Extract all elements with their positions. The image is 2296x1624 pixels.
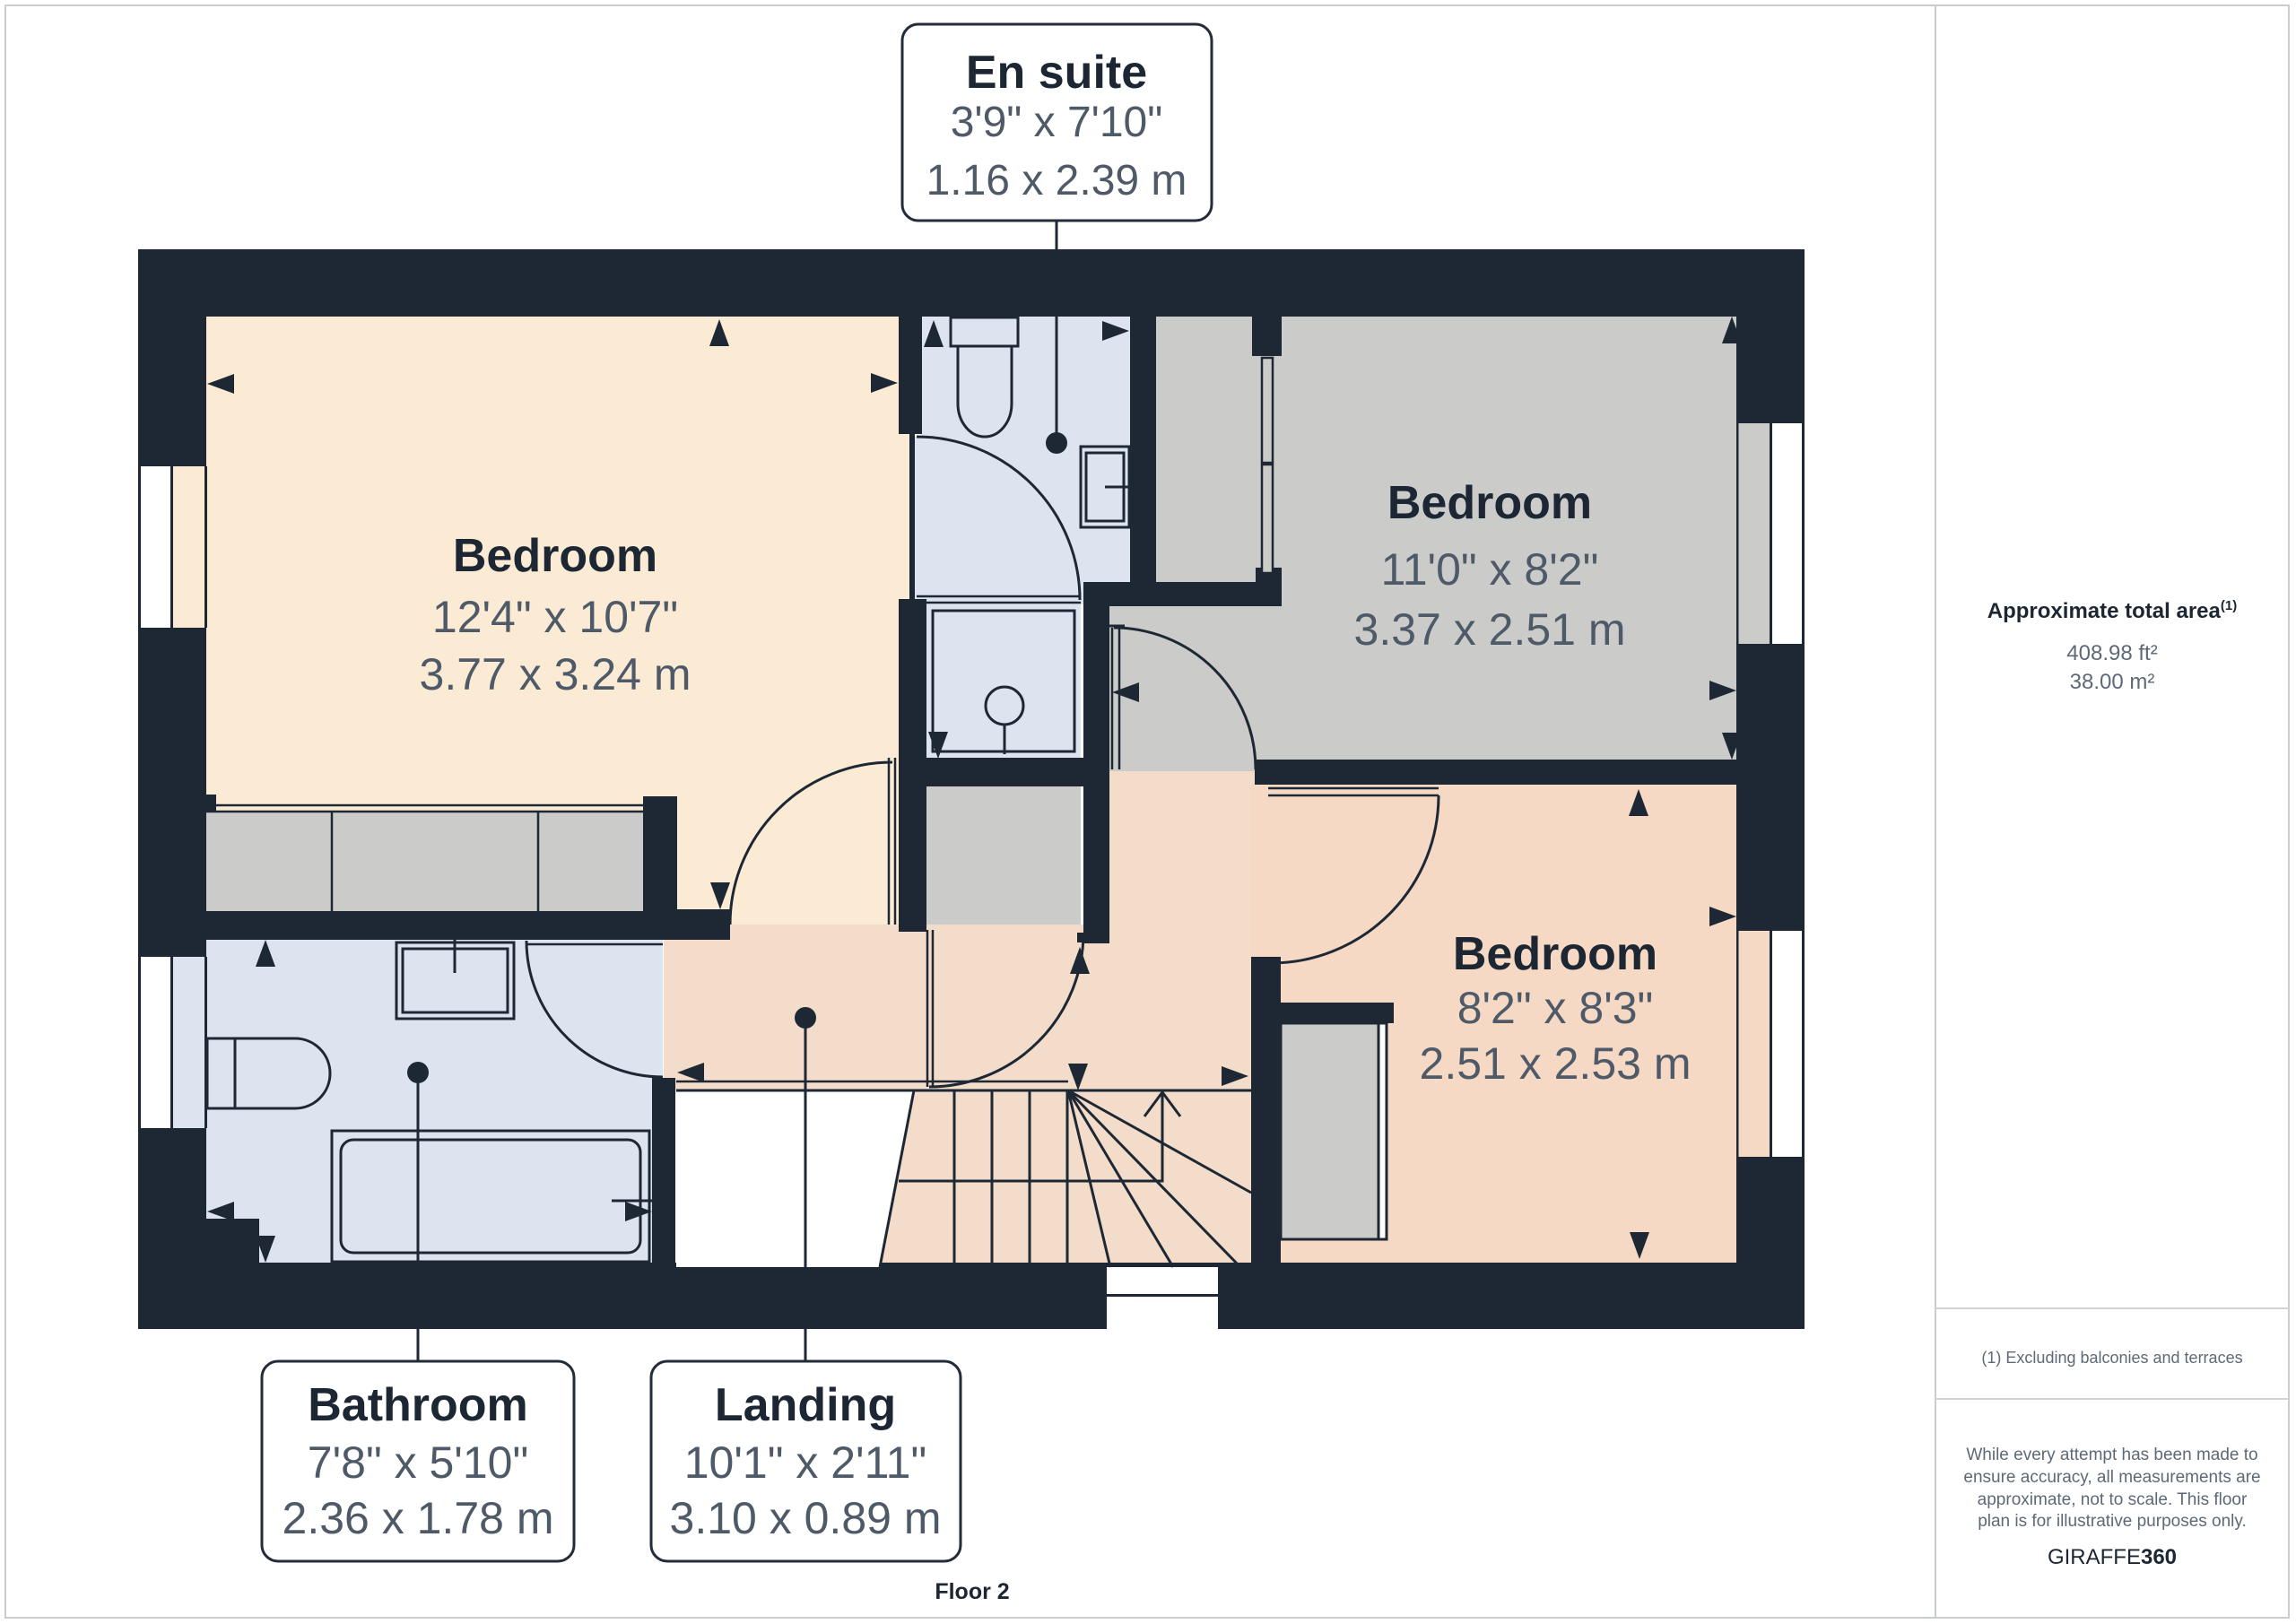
svg-text:ensure accuracy, all measureme: ensure accuracy, all measurements are bbox=[1963, 1468, 2260, 1487]
svg-text:Approximate total area(1): Approximate total area(1) bbox=[1987, 598, 2237, 623]
svg-text:10'1" x 2'11": 10'1" x 2'11" bbox=[684, 1437, 927, 1488]
svg-text:Bedroom: Bedroom bbox=[1453, 928, 1657, 980]
svg-text:2.51 x 2.53 m: 2.51 x 2.53 m bbox=[1420, 1038, 1692, 1089]
svg-text:Bedroom: Bedroom bbox=[1387, 477, 1592, 529]
svg-text:GIRAFFE360: GIRAFFE360 bbox=[2048, 1545, 2177, 1569]
svg-text:3.10 x 0.89 m: 3.10 x 0.89 m bbox=[670, 1493, 942, 1543]
svg-text:Bedroom: Bedroom bbox=[453, 530, 657, 582]
svg-text:8'2" x 8'3": 8'2" x 8'3" bbox=[1457, 983, 1654, 1033]
svg-text:approximate, not to scale. Thi: approximate, not to scale. This floor bbox=[1978, 1490, 2248, 1509]
svg-text:While every attempt has been m: While every attempt has been made to bbox=[1966, 1446, 2257, 1464]
svg-text:Bathroom: Bathroom bbox=[308, 1379, 528, 1431]
svg-text:12'4" x 10'7": 12'4" x 10'7" bbox=[432, 592, 678, 642]
svg-text:Landing: Landing bbox=[715, 1379, 896, 1431]
svg-text:En suite: En suite bbox=[966, 47, 1147, 99]
svg-text:Floor 2: Floor 2 bbox=[935, 1579, 1009, 1604]
svg-text:38.00 m²: 38.00 m² bbox=[2070, 670, 2155, 694]
svg-text:408.98 ft²: 408.98 ft² bbox=[2066, 641, 2157, 665]
svg-text:3.37 x 2.51 m: 3.37 x 2.51 m bbox=[1354, 604, 1626, 655]
svg-text:plan is for illustrative purpo: plan is for illustrative purposes only. bbox=[1978, 1512, 2247, 1531]
svg-text:3'9" x 7'10": 3'9" x 7'10" bbox=[951, 99, 1163, 146]
svg-text:2.36 x 1.78 m: 2.36 x 1.78 m bbox=[283, 1493, 554, 1543]
svg-text:1.16 x 2.39 m: 1.16 x 2.39 m bbox=[926, 157, 1187, 204]
svg-text:(1) Excluding balconies and te: (1) Excluding balconies and terraces bbox=[1981, 1349, 2242, 1367]
svg-text:3.77 x 3.24 m: 3.77 x 3.24 m bbox=[420, 649, 691, 699]
svg-text:11'0" x 8'2": 11'0" x 8'2" bbox=[1381, 544, 1599, 595]
svg-text:7'8" x 5'10": 7'8" x 5'10" bbox=[308, 1437, 528, 1488]
